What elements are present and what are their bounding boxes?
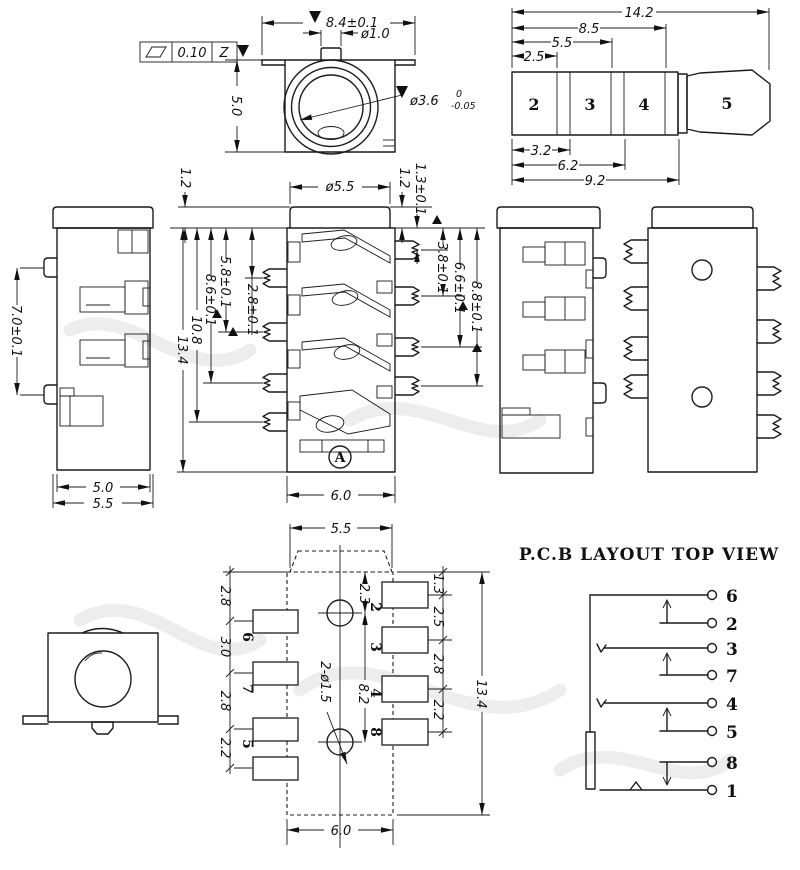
solder-fork — [624, 240, 648, 263]
bottom-tab — [92, 722, 113, 734]
pin-number: 5 — [726, 723, 738, 743]
dim-plug-8-5: 8.5 — [579, 22, 600, 37]
contact-notch-icon — [597, 644, 606, 652]
top-boss — [321, 48, 341, 60]
solder-fork — [757, 267, 781, 290]
dim-plug-3-2: 3.2 — [531, 144, 552, 159]
solder-fork — [757, 415, 781, 438]
dim-hole-offset: 2.3 — [356, 584, 371, 605]
dim-cap-depth: 5.5 — [93, 497, 114, 512]
pin-number: 4 — [726, 695, 738, 715]
pin-terminal — [708, 644, 717, 653]
dim-fork3: 8.6±0.1 — [202, 274, 217, 326]
flatness-symbol-icon — [146, 47, 166, 57]
dim-body-depth: 5.0 — [93, 481, 114, 496]
insulator-band — [557, 72, 570, 135]
pin-terminal — [708, 786, 717, 795]
tolerance-datum: Z — [219, 46, 230, 61]
pcb-pad — [253, 757, 298, 780]
dim-bore-diameter: ø3.6 — [409, 94, 439, 109]
bore-tolerance-upper: 0 — [456, 89, 462, 100]
datum-triangle-icon — [237, 45, 249, 57]
dim-pad-pitch: 2.2 — [430, 700, 445, 721]
pin-terminal — [708, 671, 717, 680]
dim-pad-pitch: 2.8 — [430, 654, 445, 675]
bore-tolerance-lower: -0.05 — [451, 101, 476, 112]
dim-plug-2-5: 2.5 — [524, 50, 545, 65]
solder-fork — [395, 287, 419, 305]
pcb-pad — [253, 662, 298, 685]
hole-callout: 2-ø1.5 — [317, 661, 332, 703]
pin-terminal — [708, 699, 717, 708]
dim-pad-pitch: 2.8 — [217, 691, 232, 712]
dim-plug-9-2: 9.2 — [585, 174, 606, 189]
contact-notch-icon — [630, 782, 642, 790]
solder-fork — [757, 320, 781, 343]
plug-view: 2 3 4 5 2.5 5.5 8.5 14.2 3.2 6.2 — [512, 6, 770, 189]
insulator-band — [665, 72, 678, 135]
dim-pad-pitch: 2.2 — [217, 738, 232, 759]
bore-keyway — [318, 127, 344, 140]
solder-fork — [395, 377, 419, 395]
dim-cap-height-right: 1.2 — [396, 168, 411, 189]
solder-fork — [624, 287, 648, 310]
dim-post-pitch: 7.0±0.1 — [8, 305, 23, 357]
pin-number: 8 — [726, 754, 738, 774]
plug-segment-label: 2 — [528, 95, 539, 114]
front-view: 8.4±0.1 ø1.0 5.0 ø3.6 0 -0.05 — [225, 11, 476, 154]
dim-pad-pitch: 2.5 — [430, 607, 445, 628]
pin-number: 3 — [726, 640, 738, 660]
solder-fork — [395, 338, 419, 356]
pin-number: 2 — [726, 615, 738, 635]
pad-number: 3 — [367, 642, 383, 652]
rear-view — [23, 629, 178, 735]
mount-post — [44, 258, 57, 277]
pad-number: 8 — [367, 727, 383, 737]
pcb-pad — [382, 719, 428, 745]
plug-segment-label: 3 — [584, 95, 595, 114]
dim-pcb-width: 6.0 — [331, 824, 352, 839]
plug-segment-label: 4 — [638, 95, 649, 114]
back-view — [624, 207, 781, 472]
pin-terminal — [708, 619, 717, 628]
dim-pcb-top-width: 5.5 — [331, 522, 352, 537]
side-view: 7.0±0.1 5.0 5.5 — [8, 207, 153, 512]
dim-plug-total: 14.2 — [625, 6, 654, 21]
pcb-pad — [382, 676, 428, 702]
dim-fork1: 2.8±0.1 — [244, 284, 259, 336]
solder-fork — [624, 337, 648, 360]
datum-triangle-icon — [432, 215, 442, 224]
dim-fork2: 5.8±0.1 — [217, 256, 232, 308]
plug-segment-label: 5 — [721, 94, 732, 113]
contact-notch-icon — [597, 699, 606, 707]
pin-number: 1 — [726, 782, 738, 802]
dim-pcb-total-height: 13.4 — [473, 680, 488, 709]
rivet-hole — [692, 387, 712, 407]
dim-plug-6-2: 6.2 — [558, 159, 579, 174]
datum-label: A — [334, 450, 347, 466]
dim-first-contact: 1.3±0.1 — [412, 163, 427, 215]
solder-fork — [263, 269, 287, 287]
pin-number: 6 — [726, 587, 738, 607]
pcb-footprint-view: 6 7 5 2 3 4 8 5.5 2.8 3.0 2.8 2.2 — [217, 522, 490, 848]
schematic-title: P.C.B LAYOUT TOP VIEW — [519, 545, 779, 565]
pin-number: 7 — [726, 667, 738, 687]
pcb-pad — [253, 718, 298, 741]
dim-cap-diameter: ø5.5 — [325, 180, 355, 195]
technical-drawing: 0.10 Z 8.4±0.1 ø1.0 — [0, 0, 800, 870]
tolerance-value: 0.10 — [178, 46, 207, 61]
dim-overall-height: 13.4 — [174, 336, 189, 365]
dim-front-height: 5.0 — [228, 96, 243, 117]
dim-section-width: 6.0 — [331, 489, 352, 504]
datum-triangle-icon — [228, 327, 238, 336]
datum-triangle-icon — [309, 11, 321, 23]
section-view: A ø5.5 1.2 1.2 1.3±0.1 13.4 10.8 8.6±0.1 — [170, 163, 485, 504]
dim-boss-diameter: ø1.0 — [360, 27, 390, 42]
mount-post — [44, 385, 57, 404]
dim-fork4: 10.8 — [188, 316, 203, 345]
pcb-pad — [253, 610, 298, 633]
dim-right-fork2: 3.8±0.1 — [434, 242, 449, 294]
dim-hole-span: 8.2 — [355, 684, 370, 705]
dim-plug-5-5: 5.5 — [552, 36, 573, 51]
datum-triangle-icon — [472, 343, 482, 352]
solder-fork — [263, 323, 287, 341]
solder-fork — [263, 413, 287, 431]
dim-pad-pitch: 2.8 — [217, 586, 232, 607]
pcb-pad — [382, 627, 428, 653]
rivet-hole — [692, 260, 712, 280]
pad-number: 5 — [239, 739, 255, 749]
mount-post — [593, 383, 606, 403]
dim-pad-pitch: 3.0 — [217, 637, 232, 658]
solder-fork — [624, 375, 648, 398]
pin-terminal — [708, 591, 717, 600]
datasheet-drawing-page: 0.10 Z 8.4±0.1 ø1.0 — [0, 0, 800, 870]
flatness-tolerance-frame: 0.10 Z — [140, 42, 249, 62]
insulator-band — [611, 72, 624, 135]
contact-spring — [302, 230, 390, 263]
pad-number: 6 — [239, 632, 255, 642]
solder-fork — [757, 372, 781, 395]
solder-fork — [395, 241, 419, 259]
pcb-pad — [382, 582, 428, 608]
dim-pad-pitch: 1.3 — [430, 574, 445, 595]
pad-number: 7 — [239, 684, 255, 694]
dim-cap-height-left: 1.2 — [177, 168, 192, 189]
mount-post — [593, 258, 606, 278]
dim-right-fork4: 8.8±0.1 — [468, 281, 483, 333]
solder-fork — [263, 374, 287, 392]
pin-terminal — [708, 727, 717, 736]
